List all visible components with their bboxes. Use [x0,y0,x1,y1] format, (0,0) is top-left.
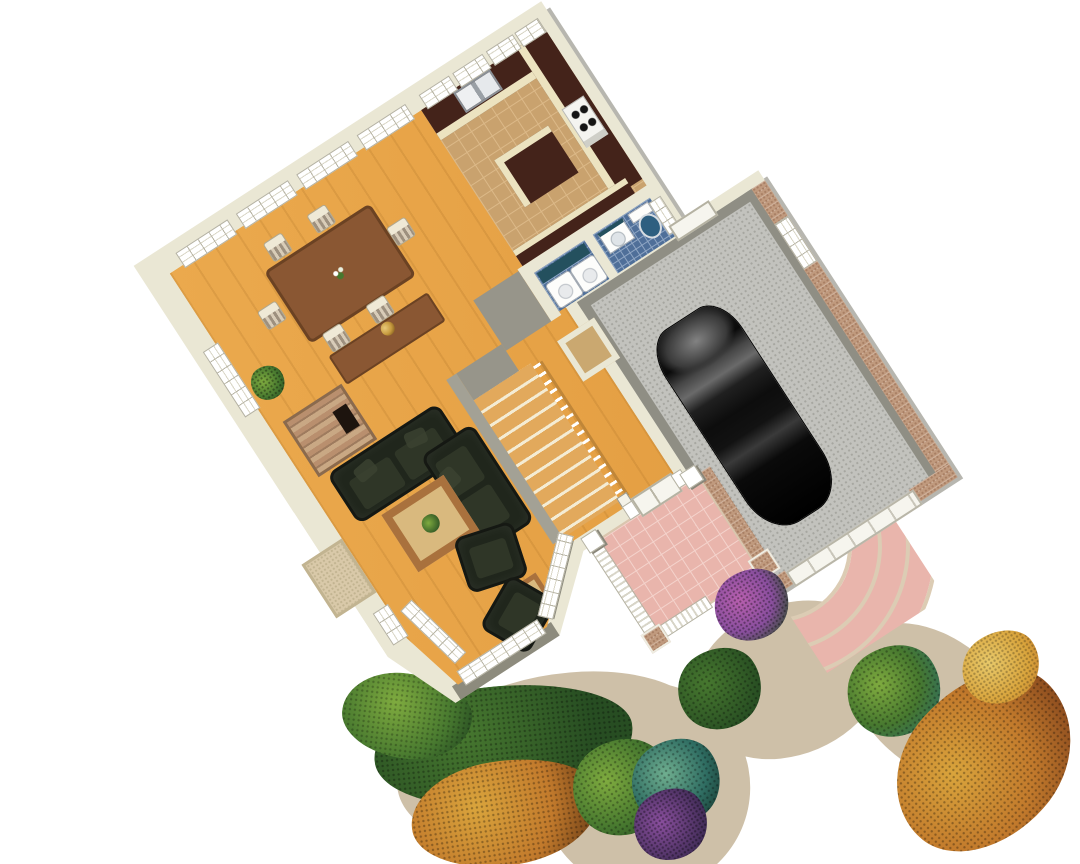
coffee-table-plant [418,511,443,536]
scene [0,0,1080,864]
table-centerpiece [327,263,350,285]
firebox-opening [332,404,360,435]
